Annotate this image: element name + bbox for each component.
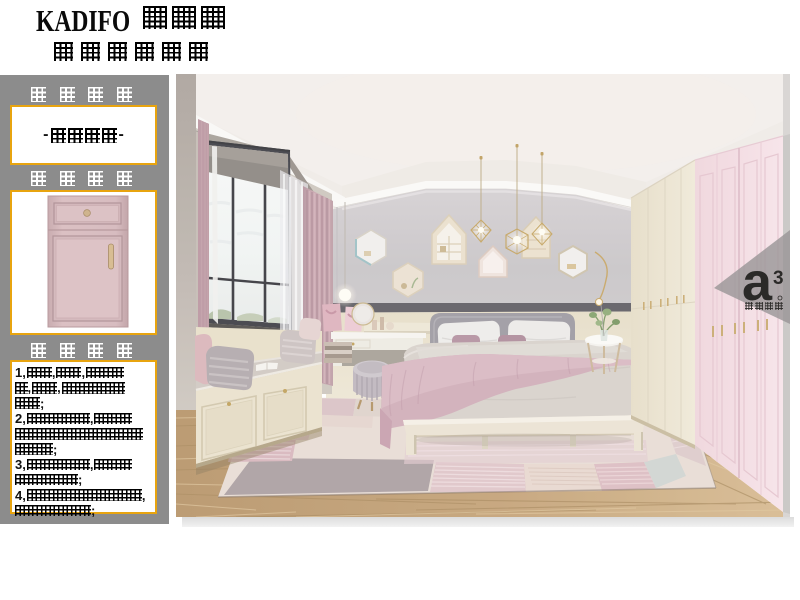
svg-text:3: 3 (773, 268, 784, 289)
